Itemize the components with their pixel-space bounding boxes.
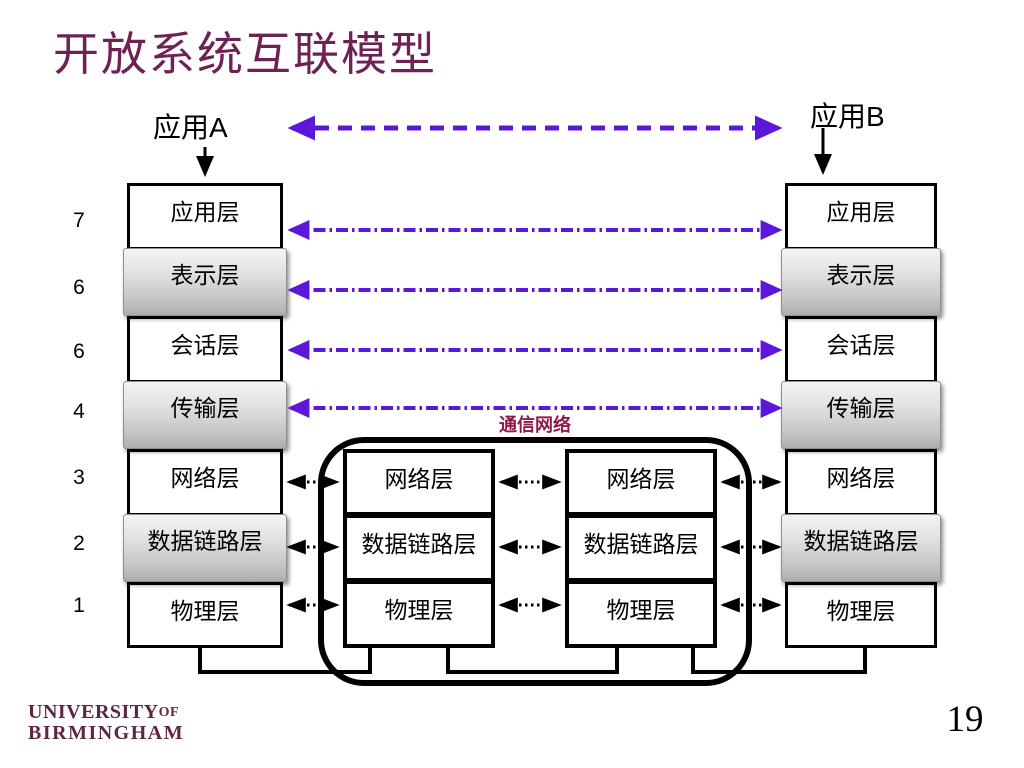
layer-number-2: 2 [62,532,96,556]
layer-label: 表示层 [827,263,896,288]
layer-number-7: 7 [62,209,96,233]
logo-line1: UNIVERSITY [28,701,159,723]
hostA-transport-layer: 传输层 [123,381,287,449]
hostA-datalink-layer: 数据链路层 [123,514,287,582]
relay2-physical-layer: 物理层 [565,580,717,648]
hostB-session-layer: 会话层 [785,316,937,383]
layer-label: 数据链路层 [148,529,263,554]
logo-line2: BIRMINGHAM [28,723,184,744]
hostB-application-layer: 应用层 [785,183,937,250]
layer-label: 网络层 [385,467,454,492]
layer-label: 物理层 [171,599,240,624]
page-title: 开放系统互联模型 [53,18,437,84]
hostA-presentation-layer: 表示层 [123,248,287,316]
layer-label: 会话层 [171,333,240,358]
university-of-birmingham-logo: UNIVERSITYOF BIRMINGHAM [28,702,184,744]
layer-label: 数据链路层 [584,532,699,557]
hostB-transport-layer: 传输层 [781,381,941,449]
layer-label: 网络层 [827,466,896,491]
endpoint-a-label: 应用A [153,106,228,146]
layer-label: 传输层 [827,396,896,421]
layer-label: 物理层 [827,599,896,624]
layer-number-4: 4 [62,400,96,424]
hostB-physical-layer: 物理层 [785,582,937,648]
layer-label: 数据链路层 [804,529,919,554]
layer-number-5: 6 [62,340,96,364]
layer-label: 网络层 [171,466,240,491]
layer-label: 应用层 [827,200,896,225]
layer-label: 传输层 [171,396,240,421]
layer-number-3: 3 [62,466,96,490]
layer-label: 数据链路层 [362,532,477,557]
relay1-physical-layer: 物理层 [343,580,495,648]
relay1-datalink-layer: 数据链路层 [343,514,495,582]
relay2-datalink-layer: 数据链路层 [565,514,717,582]
hostB-network-layer: 网络层 [785,449,937,516]
hostA-physical-layer: 物理层 [127,582,283,648]
osi-model-slide: 开放系统互联模型 应用A 应用B 7 6 6 4 3 2 1 应用层 表示层 会… [0,0,1024,768]
layer-label: 网络层 [607,467,676,492]
layer-label: 物理层 [385,598,454,623]
layer-label: 会话层 [827,333,896,358]
relay2-network-layer: 网络层 [565,449,717,516]
hostA-session-layer: 会话层 [127,316,283,383]
layer-number-1: 1 [62,594,96,618]
page-number: 19 [930,698,1000,741]
layer-label: 表示层 [171,263,240,288]
logo-line1-suffix: OF [159,705,179,720]
hostB-datalink-layer: 数据链路层 [781,514,941,582]
communication-network-label: 通信网络 [450,411,620,437]
layer-label: 物理层 [607,598,676,623]
relay1-network-layer: 网络层 [343,449,495,516]
layer-label: 应用层 [171,200,240,225]
hostA-network-layer: 网络层 [127,449,283,516]
hostB-presentation-layer: 表示层 [781,248,941,316]
hostA-application-layer: 应用层 [127,183,283,250]
endpoint-b-label: 应用B [810,95,885,135]
layer-number-6: 6 [62,276,96,300]
